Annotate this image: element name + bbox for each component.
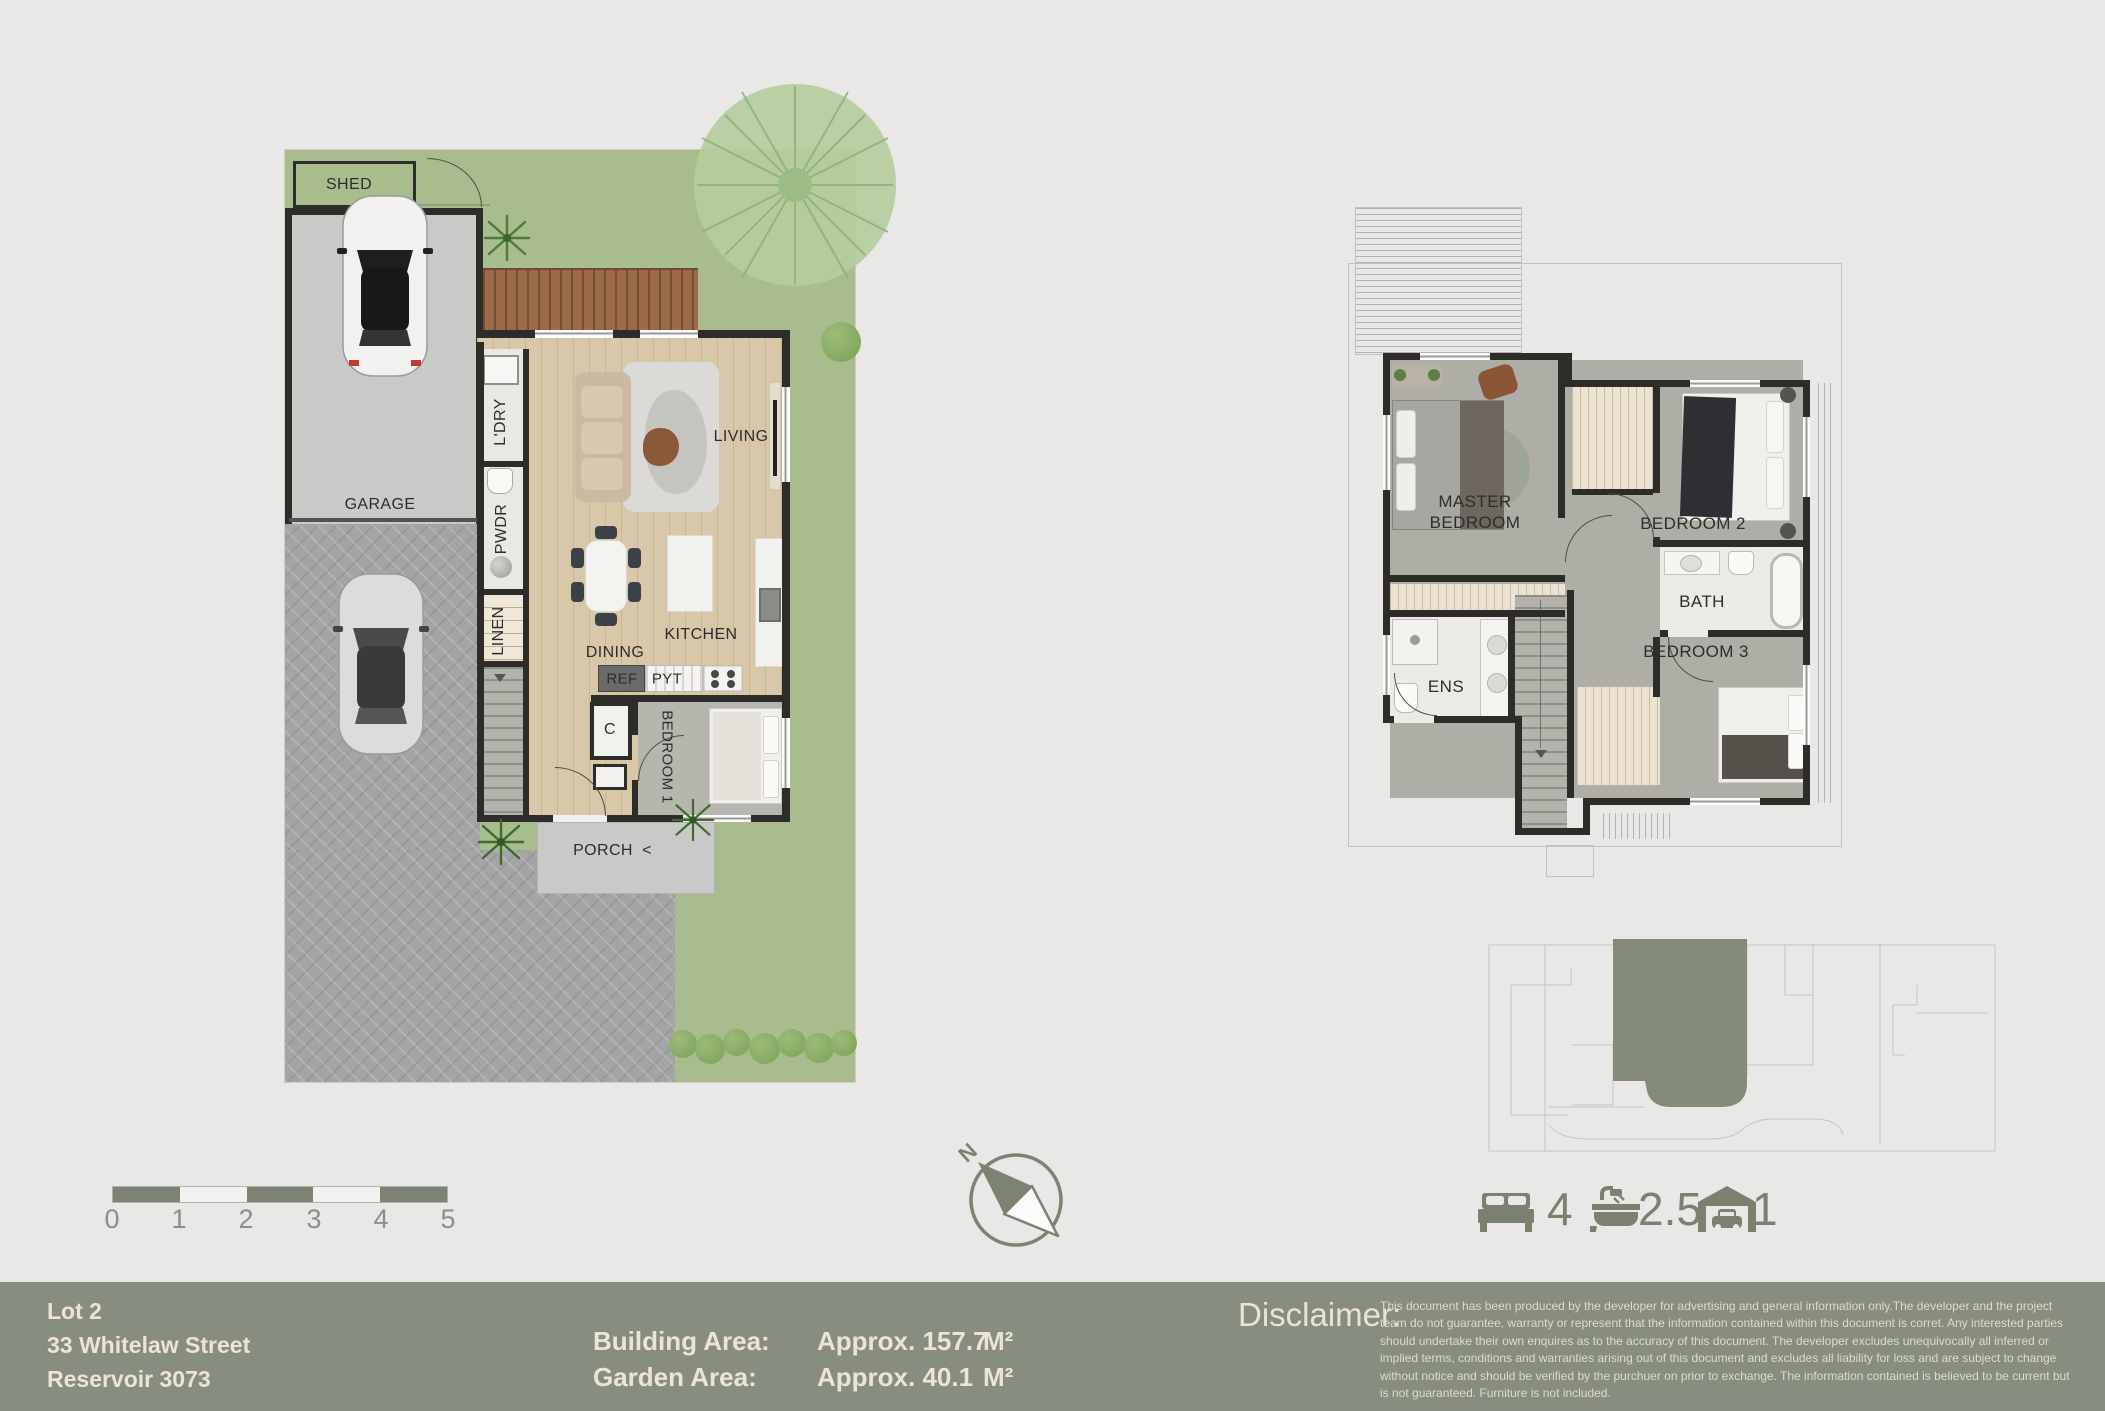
wall [523, 349, 529, 667]
wall [1515, 716, 1522, 835]
window [782, 718, 790, 788]
suburb: Reservoir 3073 [47, 1362, 250, 1396]
label-ens: ENS [1428, 677, 1464, 697]
bedroom2-throw [1680, 396, 1736, 518]
wall [591, 695, 790, 702]
wall [477, 661, 529, 667]
wall [1383, 575, 1565, 582]
ens-basin [1487, 635, 1507, 655]
master-pillow [1396, 410, 1416, 458]
building-area-label: Building Area: [593, 1326, 770, 1357]
bedroom2-pillow [1766, 401, 1784, 453]
disclaimer-label: Disclaimer: [1238, 1296, 1401, 1334]
window [1803, 665, 1810, 745]
wall [1515, 828, 1590, 835]
floorplan-sheet: SHED GARAGE L'DRY PWDR LINEN LIVING DINI… [0, 0, 2105, 1411]
building-area-unit: M² [983, 1326, 1013, 1357]
closet-nook [593, 764, 627, 790]
street-address: 33 Whitelaw Street [47, 1328, 250, 1362]
bedroom1-duvet [713, 712, 761, 800]
label-bedroom3: BEDROOM 3 [1643, 642, 1749, 662]
scale-tick: 1 [171, 1204, 186, 1235]
garage-door-line [289, 518, 479, 522]
hedge-bush [669, 1030, 697, 1058]
window [535, 330, 613, 338]
upper-floor-plan: MASTER BEDROOM BEDROOM 2 BATH BEDROOM 3 … [1330, 205, 1850, 880]
gate-swing-arc [427, 158, 482, 207]
wall [477, 589, 529, 595]
window [1803, 417, 1810, 497]
car-driveway [333, 570, 429, 758]
label-master-bedroom: MASTER BEDROOM [1405, 491, 1545, 534]
tree-icon [688, 78, 902, 292]
wall [477, 461, 529, 467]
label-laundry: L'DRY [492, 398, 510, 445]
label-bedroom1: BEDROOM 1 [659, 710, 676, 804]
cooktop [703, 665, 743, 692]
footer-bar: Lot 2 33 Whitelaw Street Reservoir 3073 … [0, 1282, 2105, 1411]
window [1420, 353, 1490, 360]
bathroom-count: 2.5 [1638, 1182, 1702, 1236]
car-icon [1698, 1186, 1756, 1232]
dining-chair [628, 582, 641, 602]
bath-basin [1680, 555, 1702, 572]
scale-segment [247, 1187, 314, 1202]
window [1383, 415, 1390, 490]
entry-door-gap [553, 815, 607, 822]
dining-chair [595, 526, 617, 539]
window [1690, 380, 1760, 387]
scale-tick: 5 [440, 1204, 455, 1235]
scale-tick: 2 [238, 1204, 253, 1235]
bed-icon [1478, 1191, 1534, 1235]
ens-door-gap [1394, 716, 1434, 723]
window [1383, 635, 1390, 695]
laundry-sink [483, 355, 519, 385]
hedge-bush [778, 1029, 806, 1057]
walk-in-robe [1572, 387, 1660, 489]
bedroom2-pillow2 [1766, 457, 1784, 509]
garden-area-value: Approx. 40.1 [817, 1362, 973, 1393]
bathtub [1770, 553, 1803, 629]
wall [1583, 798, 1590, 835]
wall [477, 330, 790, 338]
speaker [1780, 523, 1796, 539]
label-closet: C [604, 721, 616, 739]
roof-bumpout [1546, 845, 1594, 877]
bedroom1-pillow [763, 716, 779, 754]
subject-lot-shape [1613, 939, 1747, 1107]
wall [1567, 590, 1574, 798]
porch-entry-arrow: < [642, 842, 652, 860]
bath-door-gap [1668, 630, 1708, 637]
address-block: Lot 2 33 Whitelaw Street Reservoir 3073 [47, 1294, 250, 1396]
label-bath: BATH [1679, 592, 1725, 612]
dining-chair [571, 548, 584, 568]
stairs-down-arrow [1535, 750, 1547, 758]
stairs-guide-line [1540, 600, 1541, 748]
stairs-arrow [494, 674, 506, 682]
dining-chair [571, 582, 584, 602]
label-living: LIVING [714, 428, 769, 446]
garage-count: 1 [1752, 1182, 1778, 1236]
dining-table [585, 540, 627, 612]
window [1690, 798, 1760, 805]
site-locator-map [1485, 925, 2000, 1160]
label-linen: LINEN [490, 606, 508, 655]
label-garage: GARAGE [345, 496, 416, 514]
powder-basin [490, 556, 512, 578]
wall [1558, 353, 1565, 518]
roof-bottom-hatch [1603, 813, 1670, 839]
hedge-bush [723, 1029, 750, 1056]
label-shed: SHED [326, 176, 372, 194]
lot-number: Lot 2 [47, 1294, 250, 1328]
window [782, 387, 790, 482]
bath-toilet [1728, 551, 1754, 575]
scale-segment [313, 1187, 380, 1202]
wall [1565, 380, 1810, 387]
scale-segment [180, 1187, 247, 1202]
hedge-bush [804, 1033, 834, 1063]
wall [477, 342, 484, 822]
label-dining: DINING [586, 644, 644, 662]
hedge-bush [831, 1030, 857, 1056]
car-garage [337, 192, 433, 380]
dining-chair [595, 613, 617, 626]
compass: N [956, 1138, 1072, 1254]
wall [1508, 617, 1515, 723]
dining-chair [628, 548, 641, 568]
plant-pot [1428, 369, 1440, 381]
scale-bar-segments [112, 1186, 448, 1203]
sofa-cushion3 [581, 458, 623, 490]
yucca-plant [671, 798, 715, 842]
wall [1383, 610, 1565, 617]
label-ref: REF [606, 671, 637, 688]
bedroom1-door-gap [632, 735, 638, 780]
tv [773, 400, 777, 476]
kitchen-island [667, 535, 713, 612]
bath-icon [1590, 1184, 1642, 1234]
label-kitchen: KITCHEN [664, 626, 737, 644]
bedroom-count: 4 [1547, 1182, 1573, 1236]
building-area-value: Approx. 157.7 [817, 1326, 988, 1357]
scale-segment [380, 1187, 447, 1202]
powder-toilet [487, 468, 513, 494]
window [640, 330, 698, 338]
label-powder: PWDR [493, 504, 511, 554]
hedge-bush [695, 1034, 725, 1064]
hedge-bush [749, 1033, 780, 1064]
yucca-plant [477, 818, 525, 866]
scale-bar-ticks: 0 1 2 3 4 5 [112, 1204, 448, 1238]
label-bedroom2: BEDROOM 2 [1640, 514, 1746, 534]
ens-basin2 [1487, 673, 1507, 693]
bedroom3-pillow2 [1788, 733, 1804, 769]
scale-segment [113, 1187, 180, 1202]
ens-shower-head [1410, 635, 1420, 645]
roof-edge-hatch [1818, 383, 1836, 803]
stairs-upper [1515, 595, 1567, 828]
speaker [1780, 387, 1796, 403]
bedroom3-pillow [1788, 695, 1804, 731]
disclaimer-text: This document has been produced by the d… [1380, 1298, 2075, 1402]
sofa-cushion [581, 386, 623, 418]
bedroom3-robe [1577, 687, 1660, 785]
wall [523, 667, 529, 815]
garden-area-unit: M² [983, 1362, 1013, 1393]
wall [1660, 540, 1810, 547]
bedroom1-pillow2 [763, 760, 779, 798]
label-pantry: PYT [652, 671, 682, 688]
scale-tick: 0 [104, 1204, 119, 1235]
scale-tick: 4 [373, 1204, 388, 1235]
yucca-plant [483, 214, 531, 262]
garden-area-label: Garden Area: [593, 1362, 757, 1393]
garden-bush [821, 322, 861, 362]
scale-tick: 3 [306, 1204, 321, 1235]
kitchen-sink [759, 588, 781, 622]
sofa-cushion2 [581, 422, 623, 454]
label-porch: PORCH [573, 842, 633, 860]
plant-pot [1394, 369, 1406, 381]
